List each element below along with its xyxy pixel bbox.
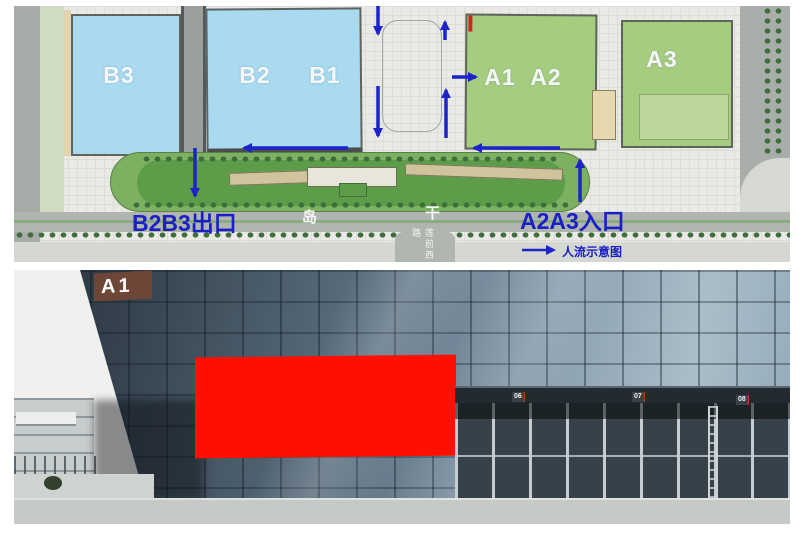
gate-sign-1-number: 06 bbox=[512, 392, 524, 402]
site-plan-panel: B3 B2 B1 A1 A2 A3 B2B3出口 A2A3入口 岛 干 莲前西路… bbox=[14, 6, 790, 262]
pedestrian-flow-arrows bbox=[14, 6, 790, 262]
composite-image: B3 B2 B1 A1 A2 A3 B2B3出口 A2A3入口 岛 干 莲前西路… bbox=[0, 0, 800, 533]
entrance-doors bbox=[455, 403, 790, 501]
label-b2: B2 bbox=[220, 62, 290, 89]
red-billboard-placeholder bbox=[195, 355, 456, 459]
vertical-road-name: 莲前西路 bbox=[410, 228, 436, 262]
ladder-structure bbox=[708, 406, 718, 498]
bush bbox=[44, 476, 62, 490]
label-b1: B1 bbox=[290, 62, 360, 89]
plaza-ground bbox=[14, 498, 790, 524]
gate-sign-2-number: 07 bbox=[632, 392, 644, 402]
facade-photo-panel: A1 A106 A107 A108 bbox=[14, 270, 790, 524]
label-a2: A2 bbox=[518, 64, 574, 91]
label-a3: A3 bbox=[630, 46, 694, 73]
road-name-char-2: 干 bbox=[425, 202, 440, 223]
building-a1-sign: A1 bbox=[94, 270, 152, 301]
label-b3: B3 bbox=[84, 62, 154, 89]
exit-label: B2B3出口 bbox=[132, 204, 237, 238]
gate-sign-3-number: 08 bbox=[736, 395, 748, 405]
legend-label: 人流示意图 bbox=[562, 243, 622, 260]
entrance-label: A2A3入口 bbox=[520, 202, 625, 236]
road-name-char-1: 岛 bbox=[302, 206, 317, 227]
distant-canopy bbox=[16, 412, 76, 426]
